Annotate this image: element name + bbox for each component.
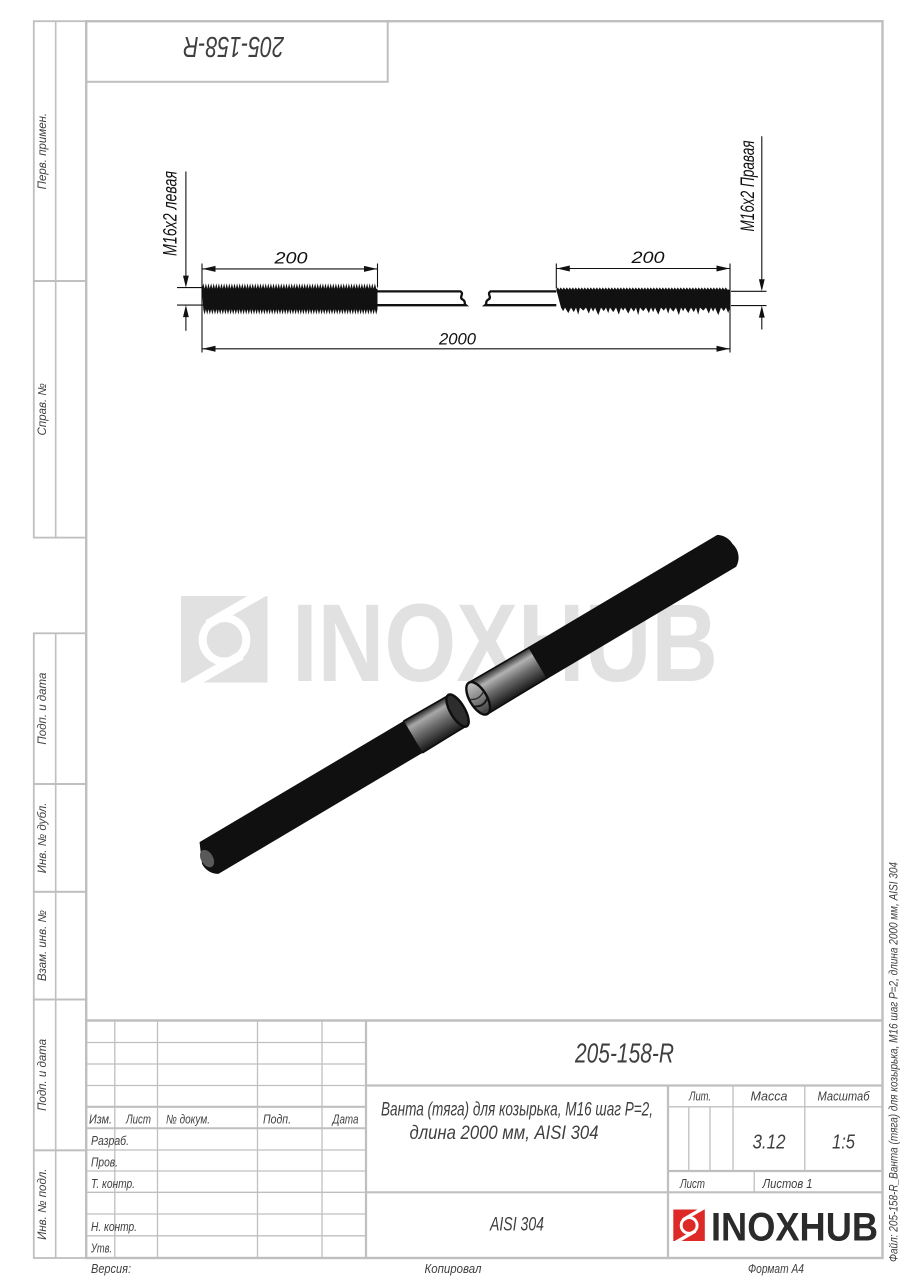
- svg-text:200: 200: [273, 249, 308, 268]
- svg-text:Масса: Масса: [751, 1090, 788, 1104]
- svg-text:Подп. и дата: Подп. и дата: [37, 1039, 49, 1111]
- svg-text:Инв. № подл.: Инв. № подл.: [37, 1169, 49, 1240]
- svg-text:200: 200: [630, 248, 665, 267]
- svg-text:Утв.: Утв.: [90, 1241, 112, 1256]
- svg-text:Формат А4: Формат А4: [748, 1262, 804, 1276]
- svg-text:Файл: 205-158-R_Ванта (тяга) д: Файл: 205-158-R_Ванта (тяга) для козырьк…: [889, 862, 901, 1262]
- svg-text:№ докум.: № докум.: [166, 1113, 210, 1127]
- svg-text:Справ. №: Справ. №: [37, 383, 49, 436]
- svg-text:Н. контр.: Н. контр.: [91, 1219, 137, 1234]
- svg-text:Листов 1: Листов 1: [762, 1177, 813, 1191]
- svg-text:Перв. примен.: Перв. примен.: [37, 113, 49, 189]
- svg-text:Изм.: Изм.: [89, 1113, 112, 1127]
- svg-text:205-158-R: 205-158-R: [183, 30, 285, 62]
- svg-text:INOXHUB: INOXHUB: [711, 1206, 878, 1250]
- svg-text:Разраб.: Разраб.: [91, 1133, 129, 1148]
- svg-text:AISI 304: AISI 304: [489, 1215, 544, 1236]
- svg-text:1:5: 1:5: [832, 1132, 856, 1154]
- svg-text:Инв. № дубл.: Инв. № дубл.: [37, 803, 49, 874]
- svg-text:Масштаб: Масштаб: [818, 1090, 871, 1104]
- svg-text:Копировал: Копировал: [425, 1262, 482, 1276]
- svg-text:3.12: 3.12: [753, 1132, 786, 1154]
- svg-text:Версия:: Версия:: [91, 1262, 131, 1276]
- svg-text:Пров.: Пров.: [91, 1155, 118, 1170]
- svg-text:Лист: Лист: [125, 1113, 151, 1127]
- svg-text:Лист: Лист: [679, 1177, 705, 1191]
- svg-text:Лит.: Лит.: [688, 1090, 711, 1104]
- svg-text:Взам. инв. №: Взам. инв. №: [37, 909, 49, 981]
- svg-text:Т. контр.: Т. контр.: [91, 1176, 135, 1191]
- svg-text:Ванта (тяга) для козырька, М16: Ванта (тяга) для козырька, М16 шаг Р=2,: [381, 1100, 653, 1121]
- svg-text:длина 2000 мм, AISI 304: длина 2000 мм, AISI 304: [410, 1123, 599, 1144]
- svg-text:205-158-R: 205-158-R: [574, 1038, 674, 1069]
- svg-text:M16x2 Правая: M16x2 Правая: [738, 141, 759, 232]
- svg-text:Дата: Дата: [331, 1113, 359, 1127]
- svg-text:M16x2 левая: M16x2 левая: [161, 171, 182, 256]
- svg-text:Подп. и дата: Подп. и дата: [37, 673, 49, 745]
- svg-text:Подп.: Подп.: [263, 1113, 291, 1127]
- svg-text:2000: 2000: [438, 330, 477, 349]
